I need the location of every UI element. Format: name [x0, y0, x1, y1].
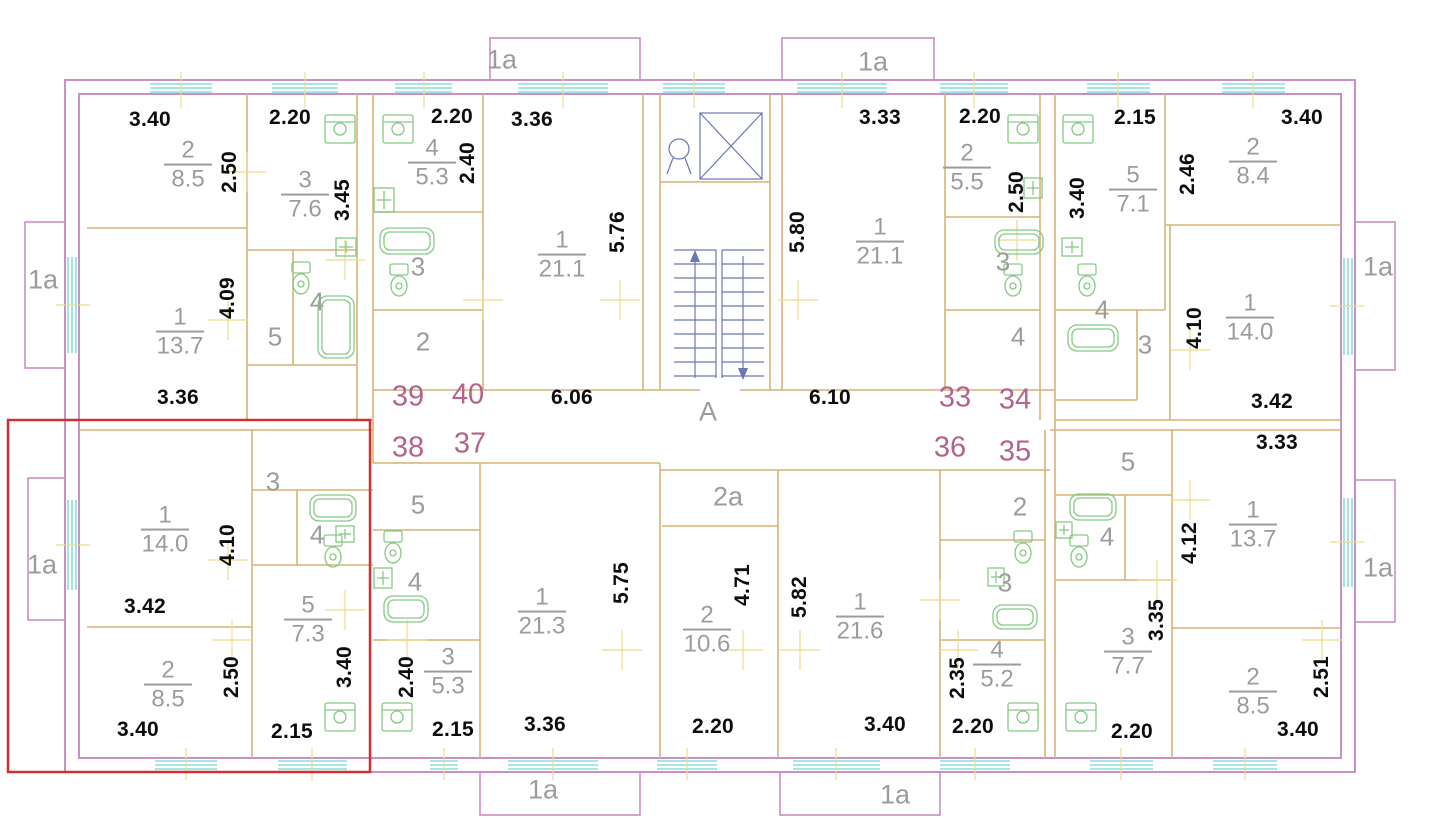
apartment-number-label: 39	[392, 381, 424, 414]
zone-label: 1a	[528, 775, 558, 806]
room-number-label: 4	[310, 287, 324, 318]
dimension-label: 2.15	[271, 720, 313, 744]
apartment-number-label: 40	[452, 379, 484, 412]
zone-label: 1a	[880, 780, 910, 811]
dimension-label: 4.10	[1183, 307, 1207, 349]
dimension-label: 3.36	[524, 713, 566, 737]
room-number-label: 4	[1095, 295, 1109, 326]
room-area-label: 45.2	[973, 638, 1021, 693]
room-area-label: 57.3	[284, 593, 332, 648]
room-area-label: 45.3	[408, 136, 456, 191]
dimension-label: 3.42	[124, 595, 166, 619]
room-area-label: 210.6	[683, 603, 731, 658]
dimension-label: 3.40	[129, 108, 171, 132]
floorplan-drawing	[0, 0, 1440, 818]
apartment-number-label: 37	[454, 428, 486, 461]
apartment-number-label: 33	[939, 382, 971, 415]
room-number-label: 4	[1100, 522, 1114, 553]
zone-label: 1a	[27, 550, 57, 581]
room-number-label: 2	[1013, 492, 1027, 523]
dimension-label: 5.76	[606, 211, 630, 253]
dimension-label: 2.20	[431, 105, 473, 129]
dimension-label: 2.50	[218, 151, 242, 193]
zone-label: 1a	[1363, 252, 1393, 283]
room-area-label: 37.7	[1104, 625, 1152, 680]
room-area-label: 25.5	[943, 141, 991, 196]
room-number-label: 5	[1121, 447, 1135, 478]
room-area-label: 28.5	[164, 138, 212, 193]
dimension-label: 2.35	[946, 657, 970, 699]
zone-label: 1a	[487, 45, 517, 76]
room-number-label: 3	[998, 568, 1012, 599]
room-number-label: 4	[408, 567, 422, 598]
room-area-label: 121.1	[856, 215, 904, 270]
room-area-label: 114.0	[141, 503, 189, 558]
zone-label: 2a	[713, 482, 743, 513]
room-area-label: 57.1	[1109, 163, 1157, 218]
dimension-label: 3.33	[1256, 431, 1298, 455]
room-area-label: 35.3	[424, 645, 472, 700]
dimension-label: 3.40	[1066, 177, 1090, 219]
dimension-label: 6.06	[551, 386, 593, 410]
dimension-label: 6.10	[809, 386, 851, 410]
dimension-label: 4.09	[216, 277, 240, 319]
room-area-label: 121.1	[538, 228, 586, 283]
dimension-label: 2.15	[432, 718, 474, 742]
dimension-label: 2.40	[395, 656, 419, 698]
room-area-label: 37.6	[281, 168, 329, 223]
room-area-label: 121.3	[518, 585, 566, 640]
zone-label: 1a	[28, 265, 58, 296]
room-number-label: 2	[416, 327, 430, 358]
dimension-label: 2.50	[220, 656, 244, 698]
dimension-label: 3.33	[859, 106, 901, 130]
room-area-label: 121.6	[836, 590, 884, 645]
dimension-label: 2.50	[1005, 171, 1029, 213]
dimension-label: 5.82	[788, 576, 812, 618]
dimension-label: 2.40	[456, 142, 480, 184]
dimension-label: 2.20	[1111, 720, 1153, 744]
zone-label: A	[699, 397, 717, 428]
dimension-label: 3.36	[157, 386, 199, 410]
dimension-label: 3.42	[1251, 390, 1293, 414]
room-area-label: 28.4	[1229, 135, 1277, 190]
dimension-label: 3.40	[117, 718, 159, 742]
dimension-label: 2.15	[1114, 106, 1156, 130]
dimension-label: 5.75	[610, 562, 634, 604]
room-number-label: 3	[1138, 330, 1152, 361]
room-area-label: 113.7	[1229, 498, 1277, 553]
dimension-label: 2.20	[269, 106, 311, 130]
dimension-label: 3.45	[331, 179, 355, 221]
staircase-and-elevator	[667, 113, 764, 380]
room-number-label: 5	[411, 490, 425, 521]
zone-label: 1a	[858, 47, 888, 78]
room-number-label: 3	[996, 247, 1010, 278]
dimension-label: 3.40	[333, 646, 357, 688]
dimension-label: 4.10	[216, 524, 240, 566]
room-number-label: 3	[411, 252, 425, 283]
room-number-label: 4	[1011, 322, 1025, 353]
dimension-label: 2.20	[959, 105, 1001, 129]
dimension-label: 3.36	[511, 108, 553, 132]
dimension-label: 2.46	[1176, 153, 1200, 195]
room-number-label: 5	[268, 322, 282, 353]
room-area-label: 113.7	[156, 305, 204, 360]
room-area-label: 28.5	[1229, 665, 1277, 720]
apartment-number-label: 35	[999, 436, 1031, 469]
dimension-label: 3.40	[1277, 718, 1319, 742]
apartment-number-label: 34	[999, 384, 1031, 417]
apartment-number-label: 36	[934, 432, 966, 465]
dimension-label: 2.20	[692, 715, 734, 739]
dimension-label: 3.40	[864, 713, 906, 737]
dimension-label: 4.12	[1178, 522, 1202, 564]
dimension-label: 4.71	[731, 564, 755, 606]
zone-label: 1a	[1363, 553, 1393, 584]
room-area-label: 114.0	[1226, 291, 1274, 346]
room-number-label: 4	[310, 520, 324, 551]
dimension-label: 5.80	[786, 211, 810, 253]
floorplan-canvas: 3.402.202.203.363.332.202.153.402.503.45…	[0, 0, 1440, 818]
dimension-label: 2.20	[952, 715, 994, 739]
dimension-label: 3.40	[1281, 106, 1323, 130]
dimension-label: 2.51	[1310, 656, 1334, 698]
room-number-label: 3	[266, 467, 280, 498]
room-area-label: 28.5	[144, 658, 192, 713]
apartment-number-label: 38	[392, 432, 424, 465]
